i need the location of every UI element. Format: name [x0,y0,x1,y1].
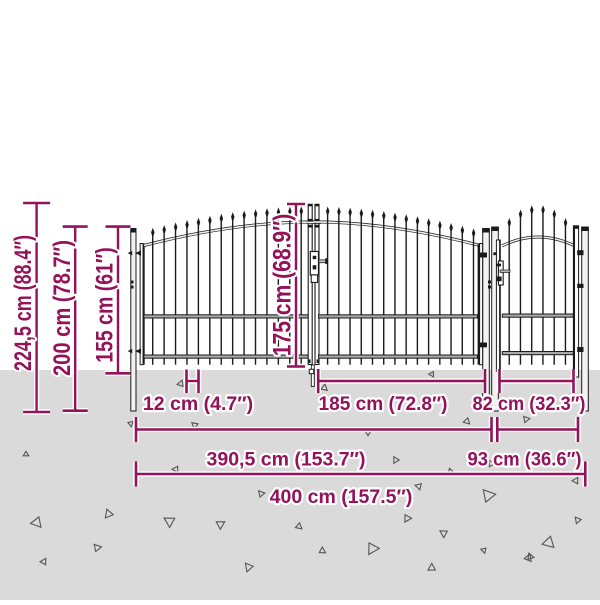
svg-text:400 cm (157.5″): 400 cm (157.5″) [270,486,413,508]
svg-text:12 cm (4.7″): 12 cm (4.7″) [143,393,253,415]
svg-text:390,5 cm (153.7″): 390,5 cm (153.7″) [207,449,366,471]
svg-text:224,5 cm (88.4″): 224,5 cm (88.4″) [10,235,37,371]
svg-text:82 cm (32.3″): 82 cm (32.3″) [473,393,586,415]
svg-text:155 cm (61″): 155 cm (61″) [92,247,119,363]
svg-text:200 cm (78.7″): 200 cm (78.7″) [49,240,76,376]
svg-text:175 cm (68.9″): 175 cm (68.9″) [269,214,297,357]
svg-text:93 cm (36.6″): 93 cm (36.6″) [468,449,582,471]
svg-text:185 cm (72.8″): 185 cm (72.8″) [319,393,448,415]
